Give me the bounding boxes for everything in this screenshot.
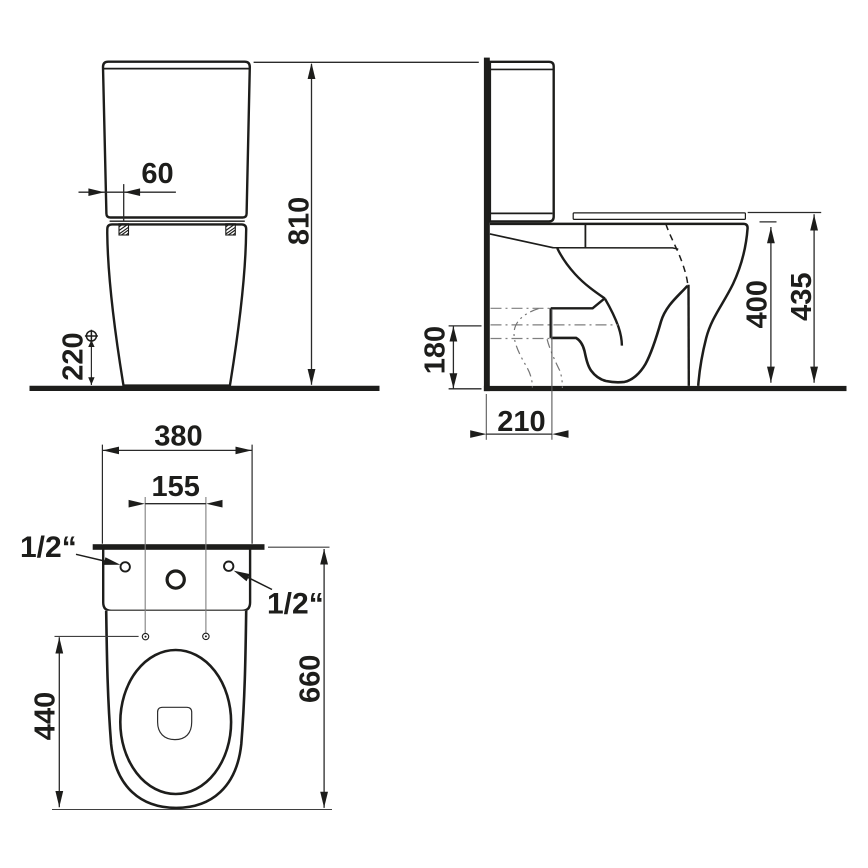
svg-text:220: 220 (57, 332, 89, 380)
svg-text:155: 155 (152, 471, 200, 503)
svg-text:60: 60 (141, 158, 173, 190)
svg-text:380: 380 (154, 420, 202, 452)
svg-text:660: 660 (294, 655, 326, 703)
svg-text:810: 810 (283, 197, 315, 245)
svg-text:435: 435 (786, 273, 818, 321)
svg-text:400: 400 (741, 280, 773, 328)
svg-text:440: 440 (30, 692, 62, 740)
svg-text:1/2“: 1/2“ (20, 531, 77, 564)
svg-text:1/2“: 1/2“ (267, 588, 324, 621)
svg-text:180: 180 (419, 326, 451, 374)
svg-text:210: 210 (497, 406, 545, 438)
